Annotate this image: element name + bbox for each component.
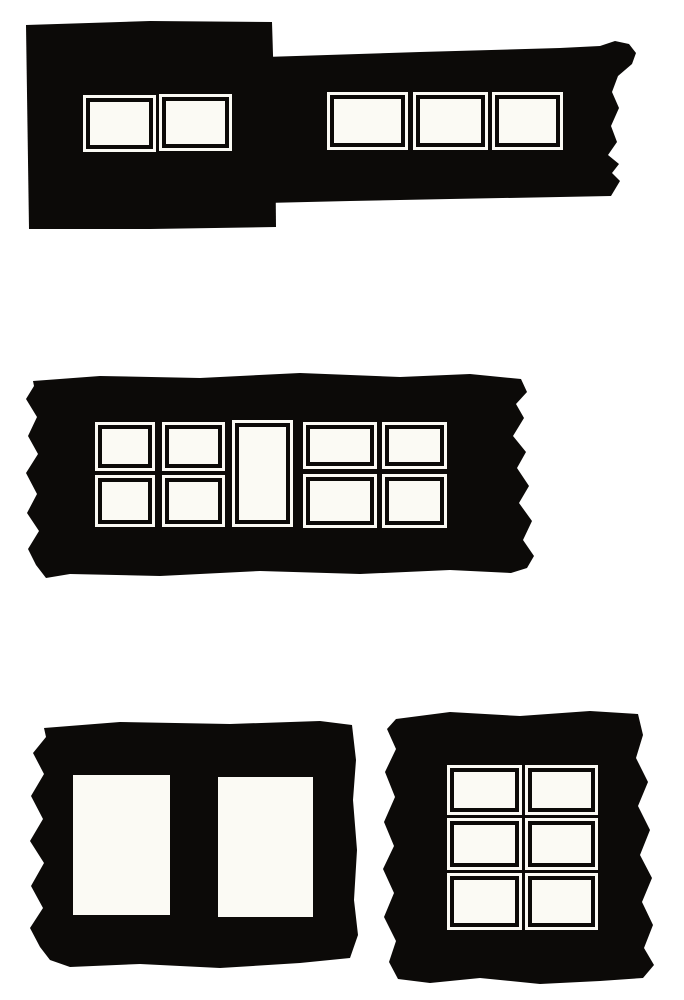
- facade-top-strip: [265, 41, 636, 203]
- window-pane-tall: [232, 420, 293, 527]
- window-pane: [413, 92, 488, 150]
- window-pane: [382, 474, 447, 528]
- facade-bottom-right-panel: [383, 711, 654, 984]
- facade-middle-strip: [26, 373, 534, 578]
- window-pane: [525, 818, 598, 870]
- facade-figure: [0, 0, 684, 1000]
- window-pane: [447, 873, 522, 930]
- window-opening: [218, 777, 313, 917]
- window-pane: [525, 765, 598, 815]
- window-pane: [162, 475, 225, 527]
- figure-page: [0, 0, 684, 1000]
- window-pane: [447, 818, 522, 870]
- window-pane: [303, 422, 377, 469]
- window-pane: [327, 92, 408, 150]
- window-pane: [162, 422, 225, 471]
- window-pane: [447, 765, 522, 815]
- window-pane: [382, 422, 447, 469]
- facade-bottom-left-panel: [30, 721, 358, 968]
- window-pane: [95, 475, 155, 527]
- window-pane: [525, 873, 598, 930]
- window-pane: [83, 95, 156, 152]
- window-opening: [73, 775, 170, 915]
- window-pane: [303, 474, 377, 528]
- window-pane: [492, 92, 563, 150]
- window-pane: [95, 422, 155, 471]
- facade-top-left-block: [26, 21, 276, 229]
- window-pane: [159, 94, 232, 151]
